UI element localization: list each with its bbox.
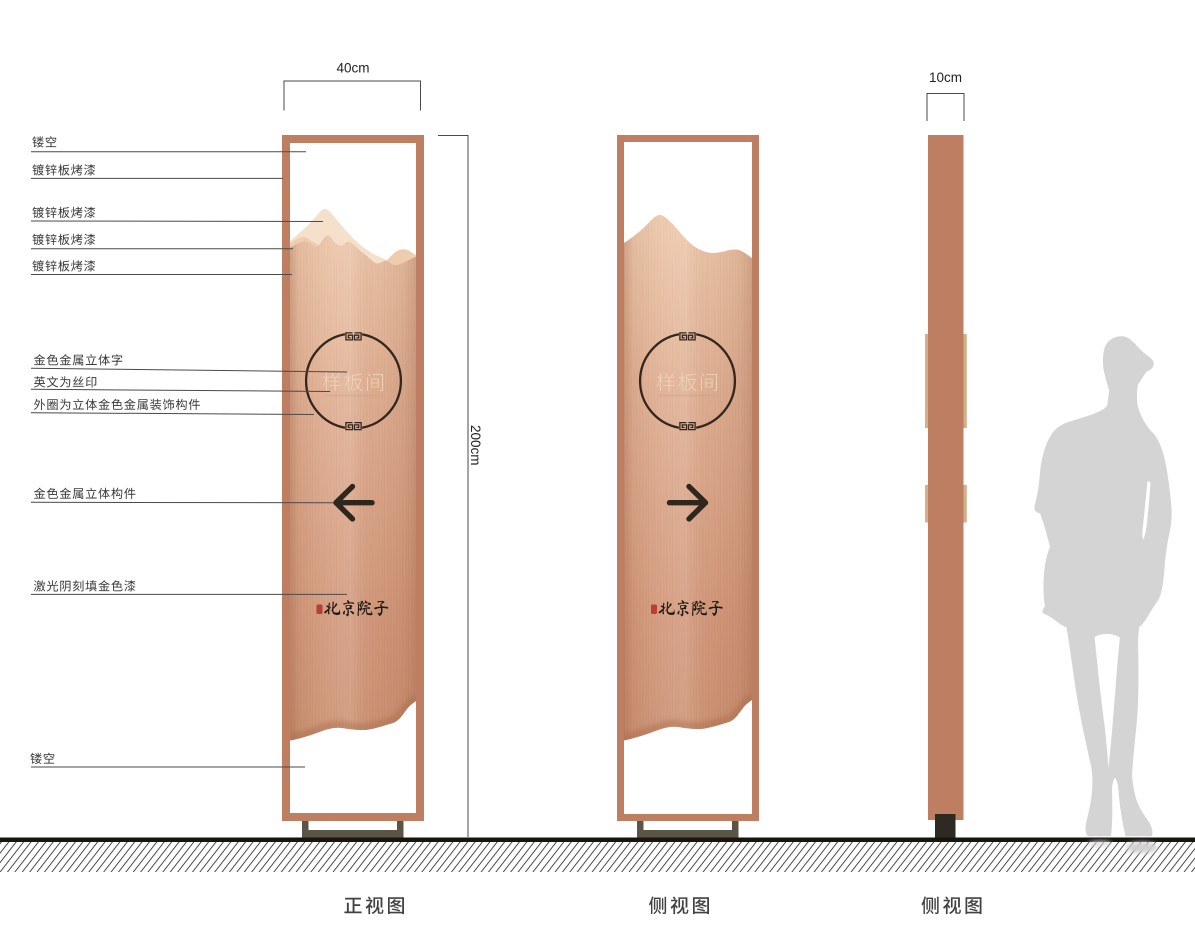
svg-text:200cm: 200cm xyxy=(468,425,483,466)
svg-text:40cm: 40cm xyxy=(336,61,369,76)
svg-text:10cm: 10cm xyxy=(929,70,962,85)
